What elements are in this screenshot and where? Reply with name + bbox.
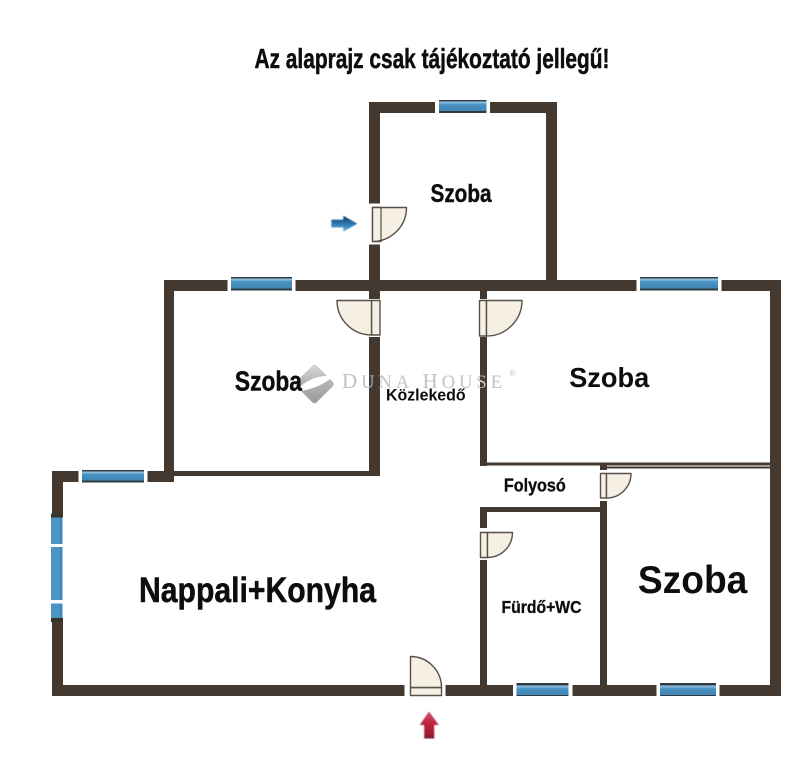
svg-text:Közlekedő: Közlekedő [386,386,466,405]
svg-text:Szoba: Szoba [235,366,302,397]
svg-text:Szoba: Szoba [569,362,649,393]
svg-text:Fürdő+WC: Fürdő+WC [502,597,582,617]
svg-text:Szoba: Szoba [638,559,748,602]
svg-text:®: ® [509,368,516,378]
svg-text:Szoba: Szoba [431,181,492,208]
svg-text:Nappali+Konyha: Nappali+Konyha [139,570,376,610]
svg-text:Folyosó: Folyosó [504,474,566,495]
svg-text:Az alaprajz csak tájékoztató j: Az alaprajz csak tájékoztató jellegű! [255,43,610,74]
